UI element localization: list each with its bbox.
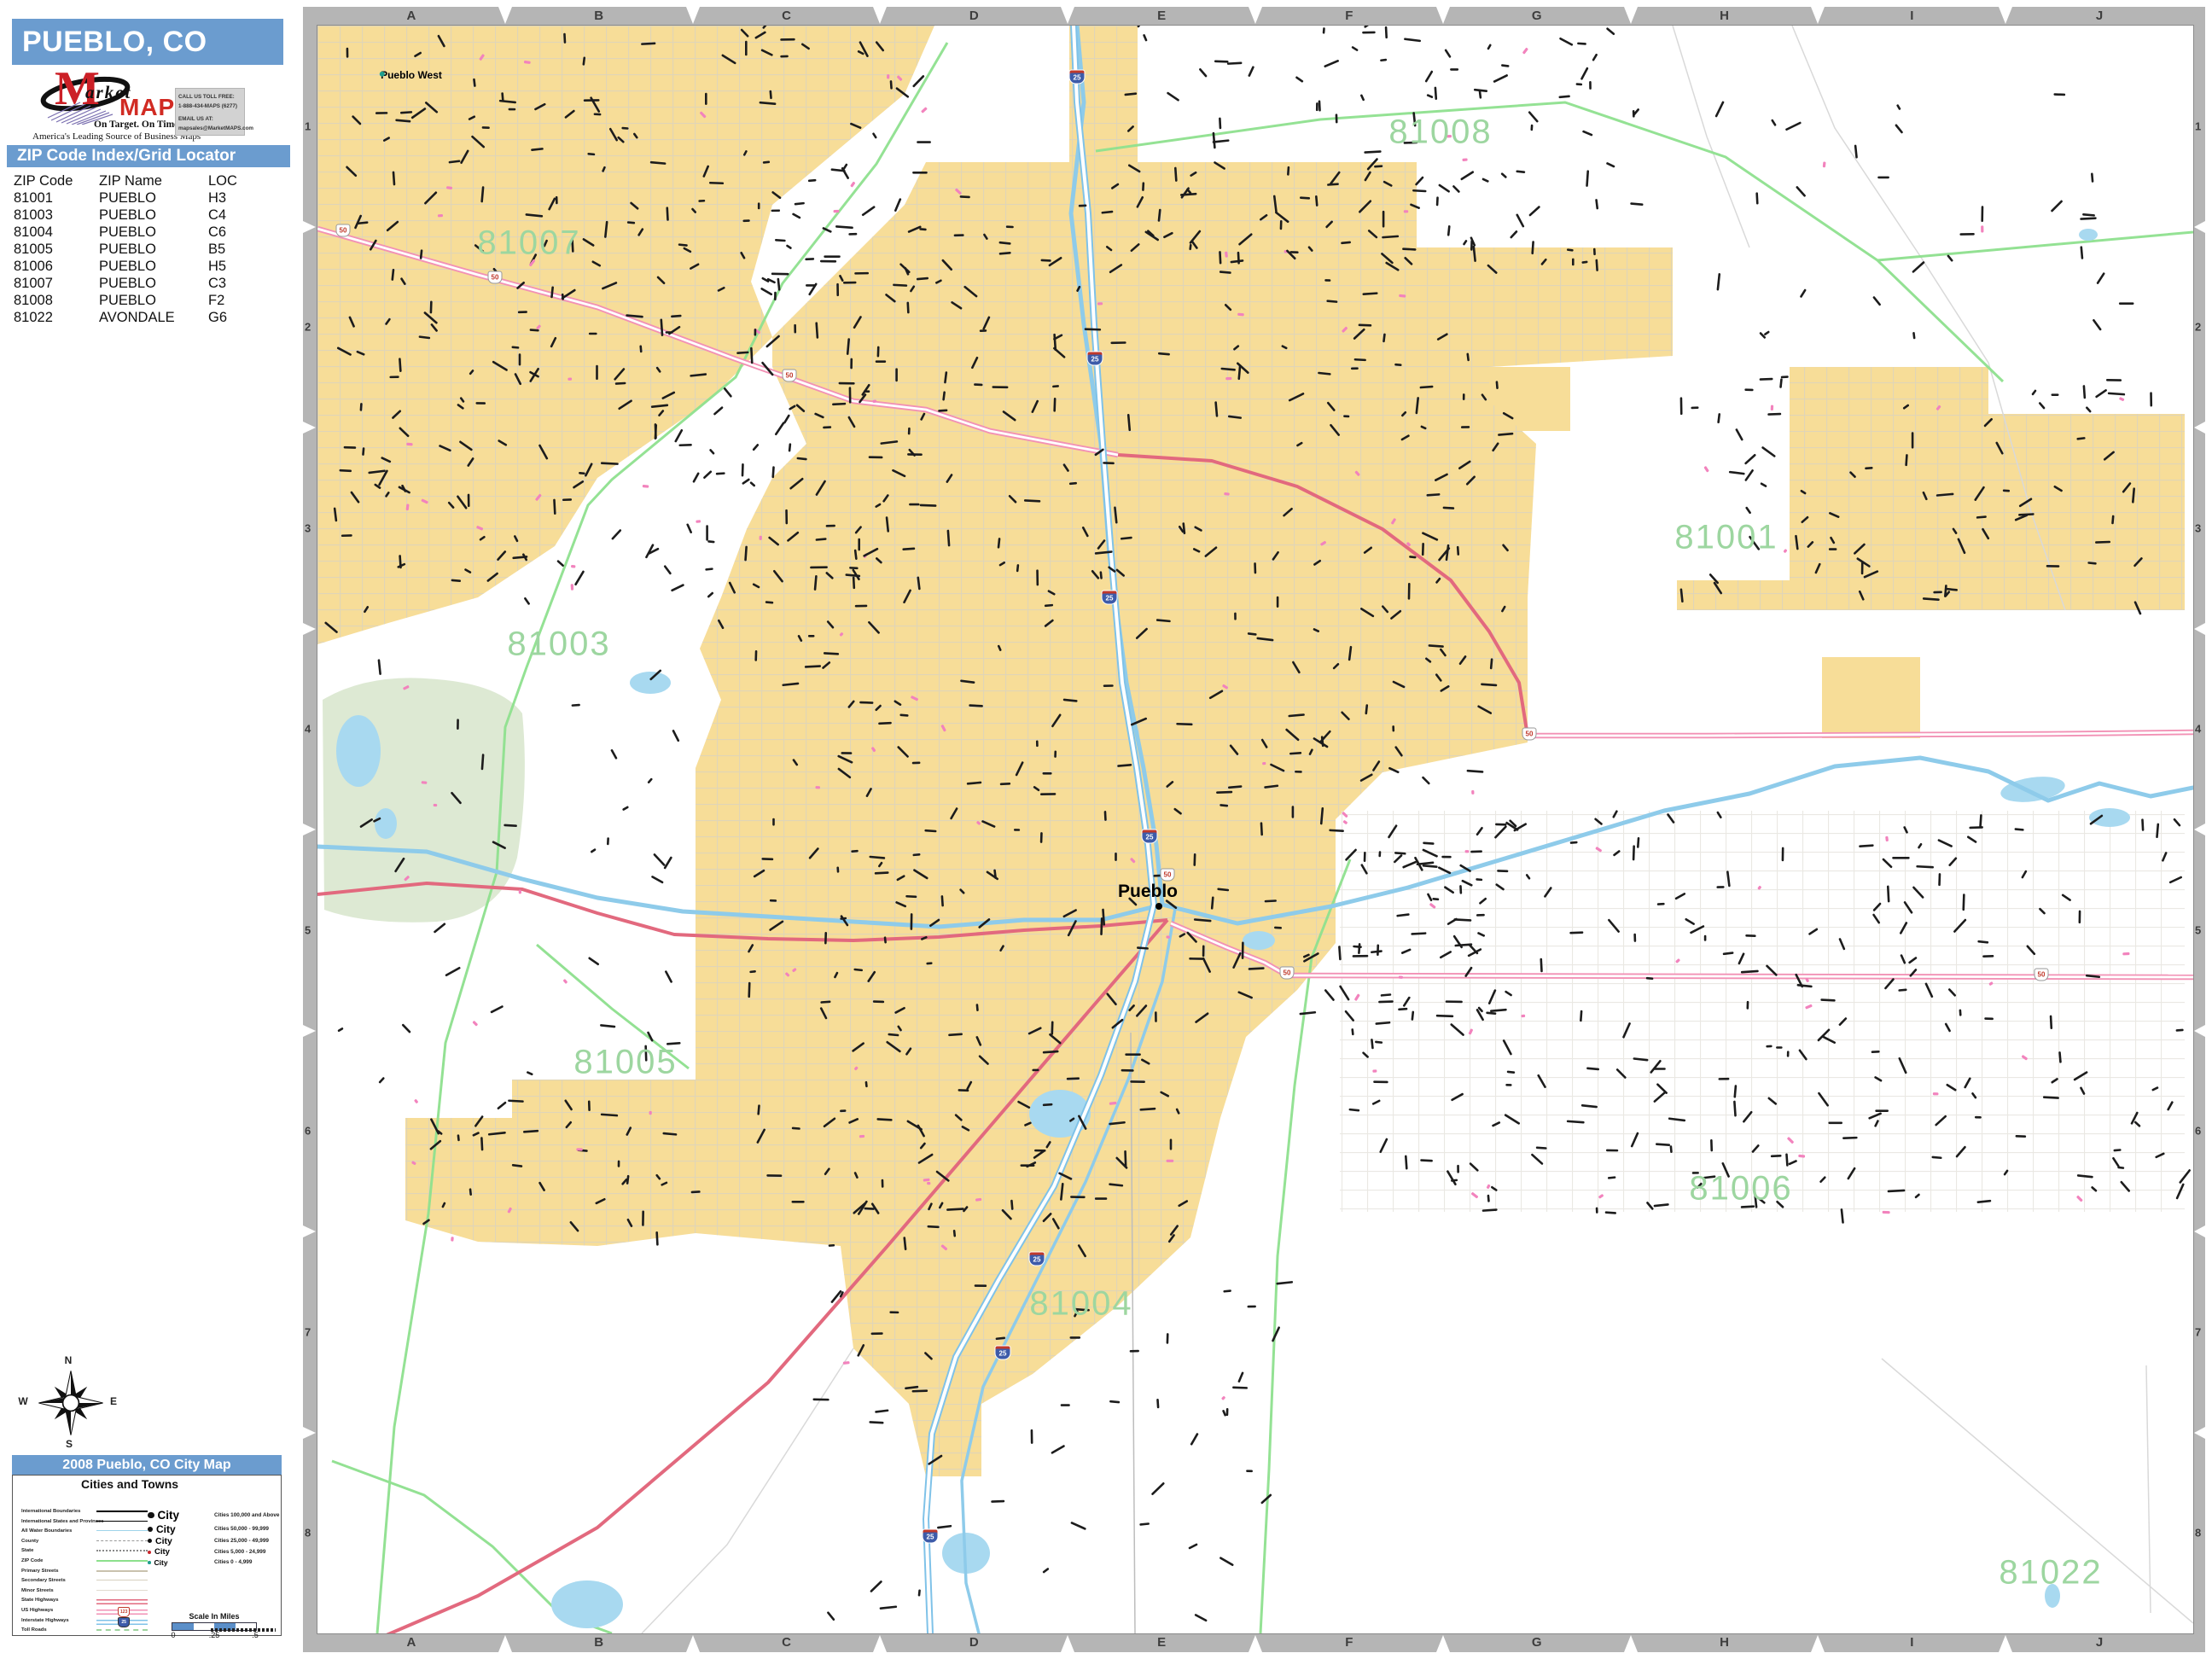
- city-dot-icon: [148, 1527, 153, 1532]
- map-canvas: 8100781008810038100181005810068100481022…: [317, 26, 2193, 1633]
- zip-table-cell: 81003: [7, 207, 99, 224]
- legend-line-label: US Highways: [21, 1608, 53, 1613]
- grid-row-label: 2: [305, 321, 311, 334]
- interstate-shield-icon: 25: [1142, 829, 1158, 844]
- col-header-zip-name: ZIP Name: [99, 172, 208, 189]
- zip-code-label: 81007: [477, 224, 580, 263]
- zip-table-cell: H3: [208, 189, 290, 207]
- contact-line: 1-888-434-MAPS (6277): [178, 102, 242, 111]
- grid-notch: [1624, 7, 1638, 24]
- zip-code-label: 81008: [1388, 114, 1492, 152]
- contact-line: EMAIL US AT:: [178, 114, 242, 124]
- grid-row-label: 2: [2195, 321, 2201, 334]
- legend-line-row: US Highways123: [21, 1607, 158, 1617]
- grid-column-label: B: [594, 1635, 603, 1650]
- zip-table-cell: F2: [208, 292, 290, 309]
- compass-rose-icon: [24, 1364, 118, 1442]
- legend-line-row: ZIP Code: [21, 1557, 158, 1568]
- legend-line-label: ZIP Code: [21, 1558, 43, 1563]
- grid-column-label: E: [1157, 9, 1166, 23]
- grid-column-label: F: [1345, 1635, 1353, 1650]
- map-frame: ABCDEFGHIJ ABCDEFGHIJ 12345678 12345678: [303, 7, 2205, 1652]
- secondary-line-sample: [96, 1580, 148, 1586]
- grid-notch: [1811, 7, 1825, 24]
- compass-south-label: S: [66, 1438, 73, 1450]
- grid-row-label: 5: [305, 923, 311, 936]
- legend-line-label: State Highways: [21, 1598, 59, 1603]
- zip-code-label: 81005: [573, 1044, 677, 1082]
- zip-table-cell: AVONDALE: [99, 309, 208, 326]
- legend-line-row: Interstate Highways25: [21, 1617, 158, 1627]
- us-highway-shield-icon: 50: [783, 370, 797, 382]
- compass-north-label: N: [65, 1354, 73, 1366]
- legend-city-label: City: [155, 1536, 172, 1546]
- grid-row-label: 1: [2195, 119, 2201, 132]
- grid-row-label: 8: [2195, 1527, 2201, 1540]
- col-header-zip-code: ZIP Code: [7, 172, 99, 189]
- zip-table-cell: 81008: [7, 292, 99, 309]
- grid-notch: [303, 422, 316, 434]
- zip-table-row: 81008PUEBLOF2: [7, 292, 290, 309]
- intl-line-sample: [96, 1511, 148, 1517]
- legend-line-label: Toll Roads: [21, 1627, 47, 1633]
- zip-table-header-row: ZIP Code ZIP Name LOC: [7, 172, 290, 189]
- legend-line-label: Primary Streets: [21, 1569, 59, 1574]
- legend-line-label: All Water Boundaries: [21, 1528, 72, 1534]
- legend-city-size-label: Cities 0 - 4,999: [214, 1557, 282, 1568]
- map-legend: 2008 Pueblo, CO City Map Cities and Town…: [12, 1455, 282, 1636]
- grid-notch: [303, 824, 316, 835]
- zip-table-row: 81007PUEBLOC3: [7, 275, 290, 292]
- grid-column-label: J: [2096, 1635, 2103, 1650]
- legend-line-row: County: [21, 1538, 158, 1548]
- legend-line-row: Secondary Streets: [21, 1577, 158, 1587]
- grid-row-label: 6: [305, 1125, 311, 1138]
- grid-column-label: E: [1157, 1635, 1166, 1650]
- legend-body: Cities and Towns International Boundarie…: [12, 1475, 282, 1636]
- grid-notch: [1999, 1635, 2012, 1652]
- grid-column-label: A: [406, 1635, 416, 1650]
- grid-column-label: F: [1345, 9, 1353, 23]
- zip-table-cell: C4: [208, 207, 290, 224]
- city-dot-icon: [148, 1561, 151, 1564]
- legend-city-size-label: Cities 25,000 - 49,999: [214, 1535, 282, 1547]
- scale-tick: 0: [171, 1631, 175, 1639]
- us-highway-shield-icon: 50: [2034, 969, 2049, 981]
- legend-city-label: City: [158, 1509, 180, 1522]
- grid-column-label: H: [1720, 1635, 1729, 1650]
- zip-code-label: 81003: [507, 626, 610, 664]
- legend-line-row: International Boundaries: [21, 1508, 158, 1518]
- grid-notch: [2194, 623, 2205, 635]
- zip-table-cell: 81007: [7, 275, 99, 292]
- legend-line-row: International States and Provinces: [21, 1518, 158, 1528]
- toll-line-sample: [96, 1629, 148, 1636]
- grid-column-label: B: [594, 9, 603, 23]
- grid-column-label: G: [1532, 9, 1542, 23]
- grid-notch: [498, 1635, 512, 1652]
- grid-notch: [1436, 1635, 1450, 1652]
- interstate-shield-icon: 25: [1069, 70, 1086, 84]
- city-name-label: Pueblo: [1118, 882, 1178, 902]
- legend-line-row: Toll Roads: [21, 1627, 158, 1637]
- grid-notch: [873, 1635, 887, 1652]
- grid-row-label: 4: [2195, 723, 2201, 736]
- legend-line-label: International Boundaries: [21, 1509, 80, 1514]
- stateprov-line-sample: [96, 1521, 148, 1527]
- legend-cities-header: Cities and Towns: [13, 1477, 247, 1491]
- primary-line-sample: [96, 1570, 148, 1577]
- us-shield-icon: 123: [118, 1607, 130, 1617]
- zip-line-sample: [96, 1560, 148, 1567]
- legend-city-row: City: [148, 1547, 212, 1558]
- zip-table-cell: 81004: [7, 224, 99, 241]
- legend-city-row: City: [148, 1535, 212, 1547]
- scale-ticks: 0 .25 .5: [172, 1631, 257, 1640]
- minor-line-sample: [96, 1590, 148, 1596]
- grid-notch: [303, 1025, 316, 1037]
- scale-title: Scale In Miles: [172, 1612, 257, 1621]
- legend-city-size-label: Cities 5,000 - 24,999: [214, 1547, 282, 1558]
- legend-city-row: City: [148, 1557, 212, 1568]
- legend-line-label: Interstate Highways: [21, 1618, 69, 1623]
- grid-band-bottom: ABCDEFGHIJ: [317, 1633, 2193, 1652]
- legend-line-row: State: [21, 1547, 158, 1557]
- zip-table-row: 81006PUEBLOH5: [7, 258, 290, 275]
- grid-row-label: 3: [2195, 521, 2201, 534]
- zip-code-label: 81006: [1689, 1170, 1792, 1208]
- scale-bar-area: Scale In Miles 0 .25 .5: [172, 1612, 257, 1640]
- zip-table-cell: PUEBLO: [99, 189, 208, 207]
- compass-west-label: W: [18, 1395, 27, 1407]
- zip-code-label: 81004: [1029, 1285, 1132, 1324]
- grid-row-label: 7: [305, 1325, 311, 1338]
- grid-row-label: 3: [305, 521, 311, 534]
- scale-tick: .5: [252, 1631, 259, 1639]
- map-label-layer: 8100781008810038100181005810068100481022…: [317, 26, 2193, 1633]
- us-highway-shield-icon: 50: [1280, 967, 1295, 980]
- legend-line-label: Secondary Streets: [21, 1578, 66, 1583]
- grid-band-right: 12345678: [2193, 26, 2205, 1633]
- compass-east-label: E: [110, 1395, 117, 1407]
- legend-city-label: City: [156, 1523, 176, 1535]
- city-dot-icon: [148, 1539, 152, 1543]
- zip-table-row: 81022AVONDALEG6: [7, 309, 290, 326]
- zip-index-table: ZIP Code ZIP Name LOC 81001PUEBLOH381003…: [7, 172, 290, 326]
- zip-table-cell: PUEBLO: [99, 292, 208, 309]
- zip-table-cell: C6: [208, 224, 290, 241]
- grid-notch: [303, 623, 316, 635]
- scale-tick: .25: [209, 1631, 220, 1639]
- marketmaps-logo: M arket MAPS On Target. On Time. America…: [29, 72, 285, 143]
- city-dot-icon: [148, 1551, 151, 1554]
- grid-column-label: C: [782, 1635, 791, 1650]
- grid-notch: [2194, 422, 2205, 434]
- legend-line-row: Primary Streets: [21, 1568, 158, 1578]
- grid-band-top: ABCDEFGHIJ: [317, 7, 2193, 26]
- legend-city-symbols: CityCityCityCityCity: [148, 1508, 212, 1568]
- grid-column-label: A: [406, 9, 416, 23]
- grid-column-label: I: [1910, 1635, 1913, 1650]
- zip-table-cell: PUEBLO: [99, 207, 208, 224]
- grid-row-label: 7: [2195, 1325, 2201, 1338]
- legend-line-label: Minor Streets: [21, 1588, 54, 1593]
- contact-box: CALL US TOLL FREE: 1-888-434-MAPS (6277)…: [175, 88, 245, 136]
- water-line-sample: [96, 1530, 148, 1536]
- legend-city-size-label: Cities 100,000 and Above: [214, 1508, 282, 1522]
- zip-table-cell: C3: [208, 275, 290, 292]
- legend-line-row: Minor Streets: [21, 1587, 158, 1598]
- legend-fineprint: [211, 1628, 276, 1632]
- city-name-label: Pueblo West: [381, 69, 442, 81]
- zip-table-row: 81005PUEBLOB5: [7, 241, 290, 258]
- grid-notch: [303, 221, 316, 233]
- page-title: PUEBLO, CO: [12, 19, 283, 65]
- left-info-panel: PUEBLO, CO M arket MAPS On Target. On Ti…: [0, 0, 303, 1659]
- zip-table-cell: PUEBLO: [99, 224, 208, 241]
- grid-notch: [686, 1635, 700, 1652]
- logo-tagline: On Target. On Time.: [94, 119, 181, 130]
- grid-notch: [1999, 7, 2012, 24]
- legend-line-row: State Highways: [21, 1597, 158, 1607]
- us-highway-shield-icon: 50: [488, 271, 503, 284]
- city-dot-icon: [1155, 903, 1162, 910]
- grid-column-label: J: [2096, 9, 2103, 23]
- zip-code-label: 81001: [1674, 519, 1778, 557]
- grid-column-label: D: [969, 9, 979, 23]
- state-line-sample: [96, 1550, 148, 1557]
- interstate-shield-icon: 25: [1087, 352, 1103, 366]
- grid-row-label: 5: [2195, 923, 2201, 936]
- contact-line: mapsales@MarketMAPS.com: [178, 124, 242, 133]
- grid-notch: [1624, 1635, 1638, 1652]
- contact-line: CALL US TOLL FREE:: [178, 92, 242, 102]
- zip-table-cell: 81005: [7, 241, 99, 258]
- statehwy-line-sample: [96, 1599, 148, 1604]
- legend-line-row: All Water Boundaries: [21, 1528, 158, 1538]
- zip-table-cell: 81022: [7, 309, 99, 326]
- county-line-sample: [96, 1540, 148, 1546]
- zip-table-row: 81003PUEBLOC4: [7, 207, 290, 224]
- grid-notch: [1061, 1635, 1074, 1652]
- legend-city-row: City: [148, 1508, 212, 1522]
- grid-notch: [303, 1225, 316, 1237]
- grid-notch: [1249, 1635, 1262, 1652]
- legend-city-row: City: [148, 1522, 212, 1535]
- zip-table-cell: PUEBLO: [99, 275, 208, 292]
- grid-band-left: 12345678: [303, 26, 317, 1633]
- legend-line-label: International States and Provinces: [21, 1519, 104, 1524]
- legend-city-label: City: [154, 1547, 170, 1557]
- interstate-shield-icon: 25: [995, 1346, 1011, 1360]
- legend-city-sizes: Cities 100,000 and AboveCities 50,000 - …: [214, 1508, 282, 1568]
- ushwy-line-sample: 123: [96, 1610, 148, 1615]
- interstate-shield-icon: 25: [1029, 1252, 1045, 1266]
- grid-row-label: 1: [305, 119, 311, 132]
- legend-city-size-label: Cities 50,000 - 99,999: [214, 1522, 282, 1535]
- legend-city-label: City: [154, 1558, 168, 1567]
- interstate-shield-icon: 25: [923, 1529, 939, 1544]
- grid-column-label: H: [1720, 9, 1729, 23]
- zip-table-row: 81001PUEBLOH3: [7, 189, 290, 207]
- grid-notch: [1436, 7, 1450, 24]
- grid-notch: [303, 1427, 316, 1439]
- grid-notch: [1249, 7, 1262, 24]
- zip-table-cell: H5: [208, 258, 290, 275]
- grid-column-label: D: [969, 1635, 979, 1650]
- us-highway-shield-icon: 50: [1161, 869, 1175, 882]
- us-highway-shield-icon: 50: [1522, 728, 1537, 741]
- grid-notch: [1811, 1635, 1825, 1652]
- zip-table-cell: PUEBLO: [99, 258, 208, 275]
- grid-column-label: I: [1910, 9, 1913, 23]
- grid-column-label: C: [782, 9, 791, 23]
- zip-table-cell: G6: [208, 309, 290, 326]
- legend-title: 2008 Pueblo, CO City Map: [12, 1455, 282, 1475]
- grid-notch: [2194, 221, 2205, 233]
- grid-row-label: 4: [305, 723, 311, 736]
- grid-notch: [2194, 824, 2205, 835]
- grid-notch: [2194, 1025, 2205, 1037]
- legend-line-label: State: [21, 1548, 33, 1553]
- grid-notch: [686, 7, 700, 24]
- legend-line-items: International BoundariesInternational St…: [21, 1508, 158, 1637]
- zip-table-cell: 81001: [7, 189, 99, 207]
- zip-table-cell: PUEBLO: [99, 241, 208, 258]
- grid-column-label: G: [1532, 1635, 1542, 1650]
- interstate-line-sample: 25: [96, 1620, 148, 1625]
- zip-code-label: 81022: [1999, 1554, 2102, 1592]
- interstate-shield-icon: 25: [118, 1617, 130, 1627]
- grid-row-label: 8: [305, 1527, 311, 1540]
- us-highway-shield-icon: 50: [336, 224, 351, 237]
- grid-notch: [1061, 7, 1074, 24]
- grid-row-label: 6: [2195, 1125, 2201, 1138]
- grid-notch: [873, 7, 887, 24]
- zip-table-cell: B5: [208, 241, 290, 258]
- grid-notch: [498, 7, 512, 24]
- grid-notch: [2194, 1427, 2205, 1439]
- col-header-loc: LOC: [208, 172, 290, 189]
- city-dot-icon: [148, 1512, 154, 1519]
- zip-table-row: 81004PUEBLOC6: [7, 224, 290, 241]
- grid-notch: [2194, 1225, 2205, 1237]
- legend-line-label: County: [21, 1539, 38, 1544]
- interstate-shield-icon: 25: [1102, 591, 1118, 605]
- zip-index-header: ZIP Code Index/Grid Locator: [7, 145, 290, 167]
- zip-table-cell: 81006: [7, 258, 99, 275]
